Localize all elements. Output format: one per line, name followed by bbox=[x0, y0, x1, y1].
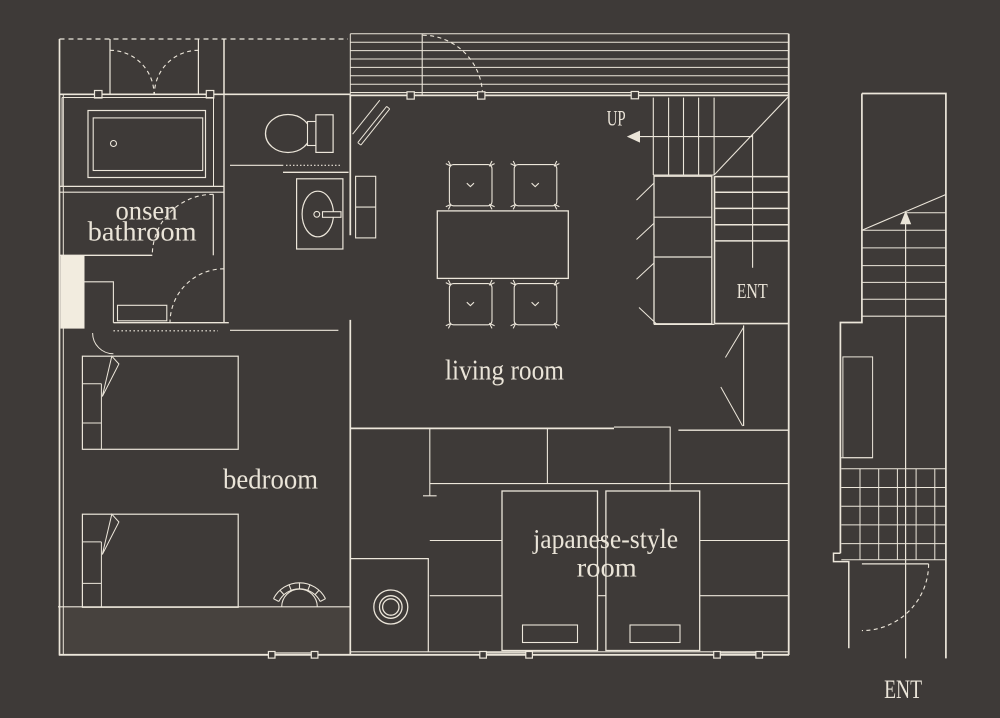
svg-text:UP: UP bbox=[607, 105, 626, 130]
svg-text:japanese-style: japanese-style bbox=[532, 524, 678, 554]
svg-text:bathroom: bathroom bbox=[88, 217, 197, 247]
svg-text:living room: living room bbox=[445, 355, 564, 387]
svg-text:ENT: ENT bbox=[737, 279, 768, 303]
svg-text:room: room bbox=[577, 552, 637, 582]
svg-text:bedroom: bedroom bbox=[223, 463, 318, 495]
svg-text:ENT: ENT bbox=[884, 675, 922, 704]
